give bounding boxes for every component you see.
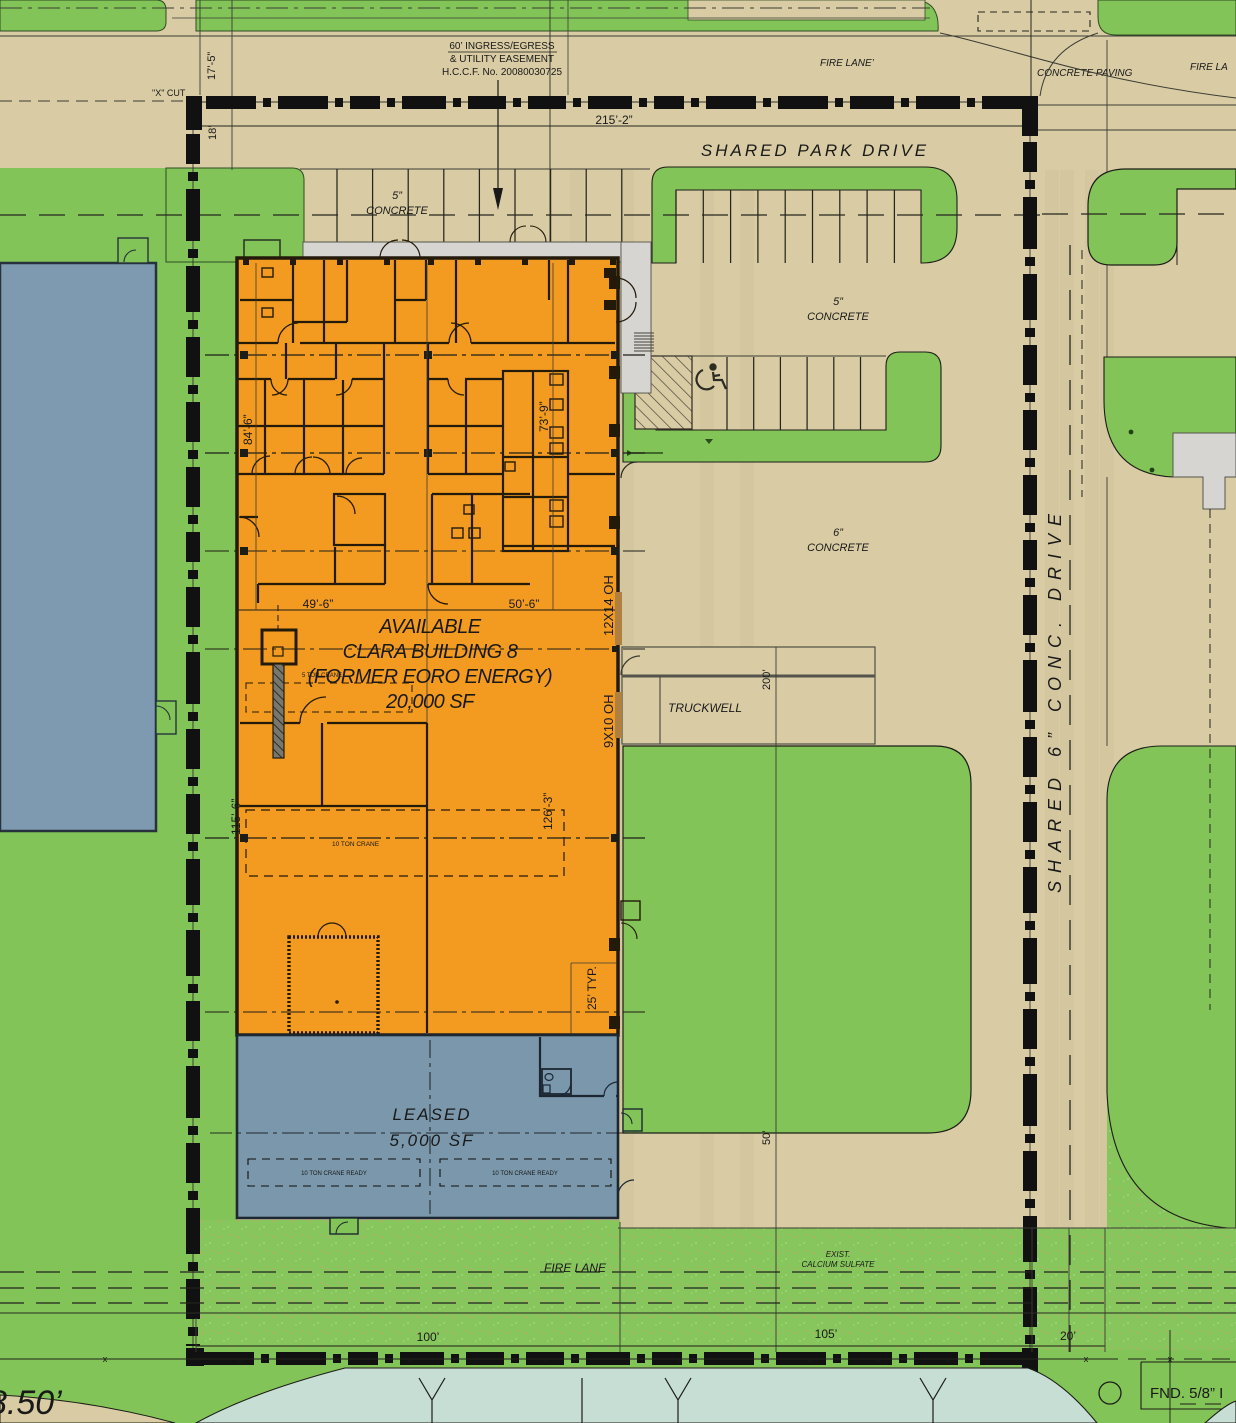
svg-text:5 TON CRANE: 5 TON CRANE	[302, 673, 342, 679]
svg-text:10 TON CRANE: 10 TON CRANE	[332, 841, 380, 848]
svg-text:x: x	[876, 1354, 881, 1364]
svg-text:FIRE LANE: FIRE LANE	[544, 1261, 607, 1275]
svg-text:FND. 5/8” I: FND. 5/8” I	[1150, 1385, 1223, 1402]
svg-text:200’: 200’	[761, 669, 773, 690]
svg-text:FIRE LA: FIRE LA	[1190, 62, 1228, 73]
svg-text:x: x	[408, 1354, 413, 1364]
svg-text:CALCIUM SULFATE: CALCIUM SULFATE	[801, 1260, 875, 1269]
svg-text:25’ TYP.: 25’ TYP.	[585, 966, 599, 1010]
svg-text:EXIST.: EXIST.	[826, 1250, 851, 1259]
svg-text:5”: 5”	[833, 296, 844, 308]
svg-text:50’: 50’	[761, 1130, 773, 1145]
svg-text:5”: 5”	[392, 190, 403, 202]
svg-text:x: x	[678, 1354, 683, 1364]
svg-text:LEASED: LEASED	[392, 1105, 471, 1124]
svg-text:CLARA BUILDING 8: CLARA BUILDING 8	[343, 641, 518, 663]
svg-text:10 TON CRANE READY: 10 TON CRANE READY	[301, 1171, 367, 1177]
svg-text:x: x	[946, 1354, 951, 1364]
svg-text:(FORMER EORO ENERGY): (FORMER EORO ENERGY)	[308, 666, 552, 688]
svg-text:CONCRETE: CONCRETE	[807, 542, 869, 554]
svg-text:5,000 SF: 5,000 SF	[390, 1131, 475, 1150]
svg-text:50’-6”: 50’-6”	[509, 597, 540, 611]
svg-text:17’-5”: 17’-5”	[206, 52, 218, 80]
svg-text:x: x	[238, 1354, 243, 1364]
svg-text:9X10 OH: 9X10 OH	[601, 695, 616, 748]
svg-text:CONCRETE PAVING: CONCRETE PAVING	[1037, 68, 1133, 79]
svg-text:x: x	[808, 1354, 813, 1364]
svg-text:12X14 OH: 12X14 OH	[601, 575, 616, 636]
svg-text:CONCRETE: CONCRETE	[366, 205, 428, 217]
svg-text:& UTILITY EASEMENT: & UTILITY EASEMENT	[450, 54, 554, 65]
svg-text:H.C.C.F. No. 20080030725: H.C.C.F. No. 20080030725	[442, 67, 563, 78]
svg-text:84’-6”: 84’-6”	[241, 414, 255, 445]
svg-text:18’: 18’	[207, 125, 219, 140]
svg-text:FIRE LANE’: FIRE LANE’	[820, 58, 875, 69]
svg-text:49’-6”: 49’-6”	[303, 597, 334, 611]
svg-text:x: x	[1084, 1354, 1089, 1364]
svg-text:x: x	[543, 1354, 548, 1364]
svg-text:x: x	[103, 1354, 108, 1364]
svg-text:8.50’: 8.50’	[0, 1384, 62, 1422]
svg-text:60’ INGRESS/EGRESS: 60’ INGRESS/EGRESS	[449, 41, 555, 52]
svg-text:10 TON CRANE READY: 10 TON CRANE READY	[492, 1171, 558, 1177]
svg-text:115’-6”: 115’-6”	[229, 799, 243, 835]
svg-text:105’: 105’	[815, 1327, 838, 1341]
svg-text:100’: 100’	[417, 1330, 440, 1344]
svg-text:215’-2”: 215’-2”	[595, 113, 632, 127]
svg-text:CONCRETE: CONCRETE	[807, 311, 869, 323]
svg-text:SHARED 6” CONC. DRIVE: SHARED 6” CONC. DRIVE	[1045, 506, 1065, 893]
svg-text:AVAILABLE: AVAILABLE	[378, 616, 481, 638]
svg-text:73’-9”: 73’-9”	[537, 401, 551, 432]
svg-text:TRUCKWELL: TRUCKWELL	[668, 701, 742, 715]
svg-text:126’-3”: 126’-3”	[541, 793, 555, 830]
svg-text:"X" CUT: "X" CUT	[152, 88, 186, 98]
svg-text:SHARED PARK DRIVE: SHARED PARK DRIVE	[701, 141, 929, 160]
svg-text:20,000 SF: 20,000 SF	[385, 691, 476, 713]
svg-text:6”: 6”	[833, 527, 844, 539]
svg-text:20’: 20’	[1060, 1329, 1076, 1343]
